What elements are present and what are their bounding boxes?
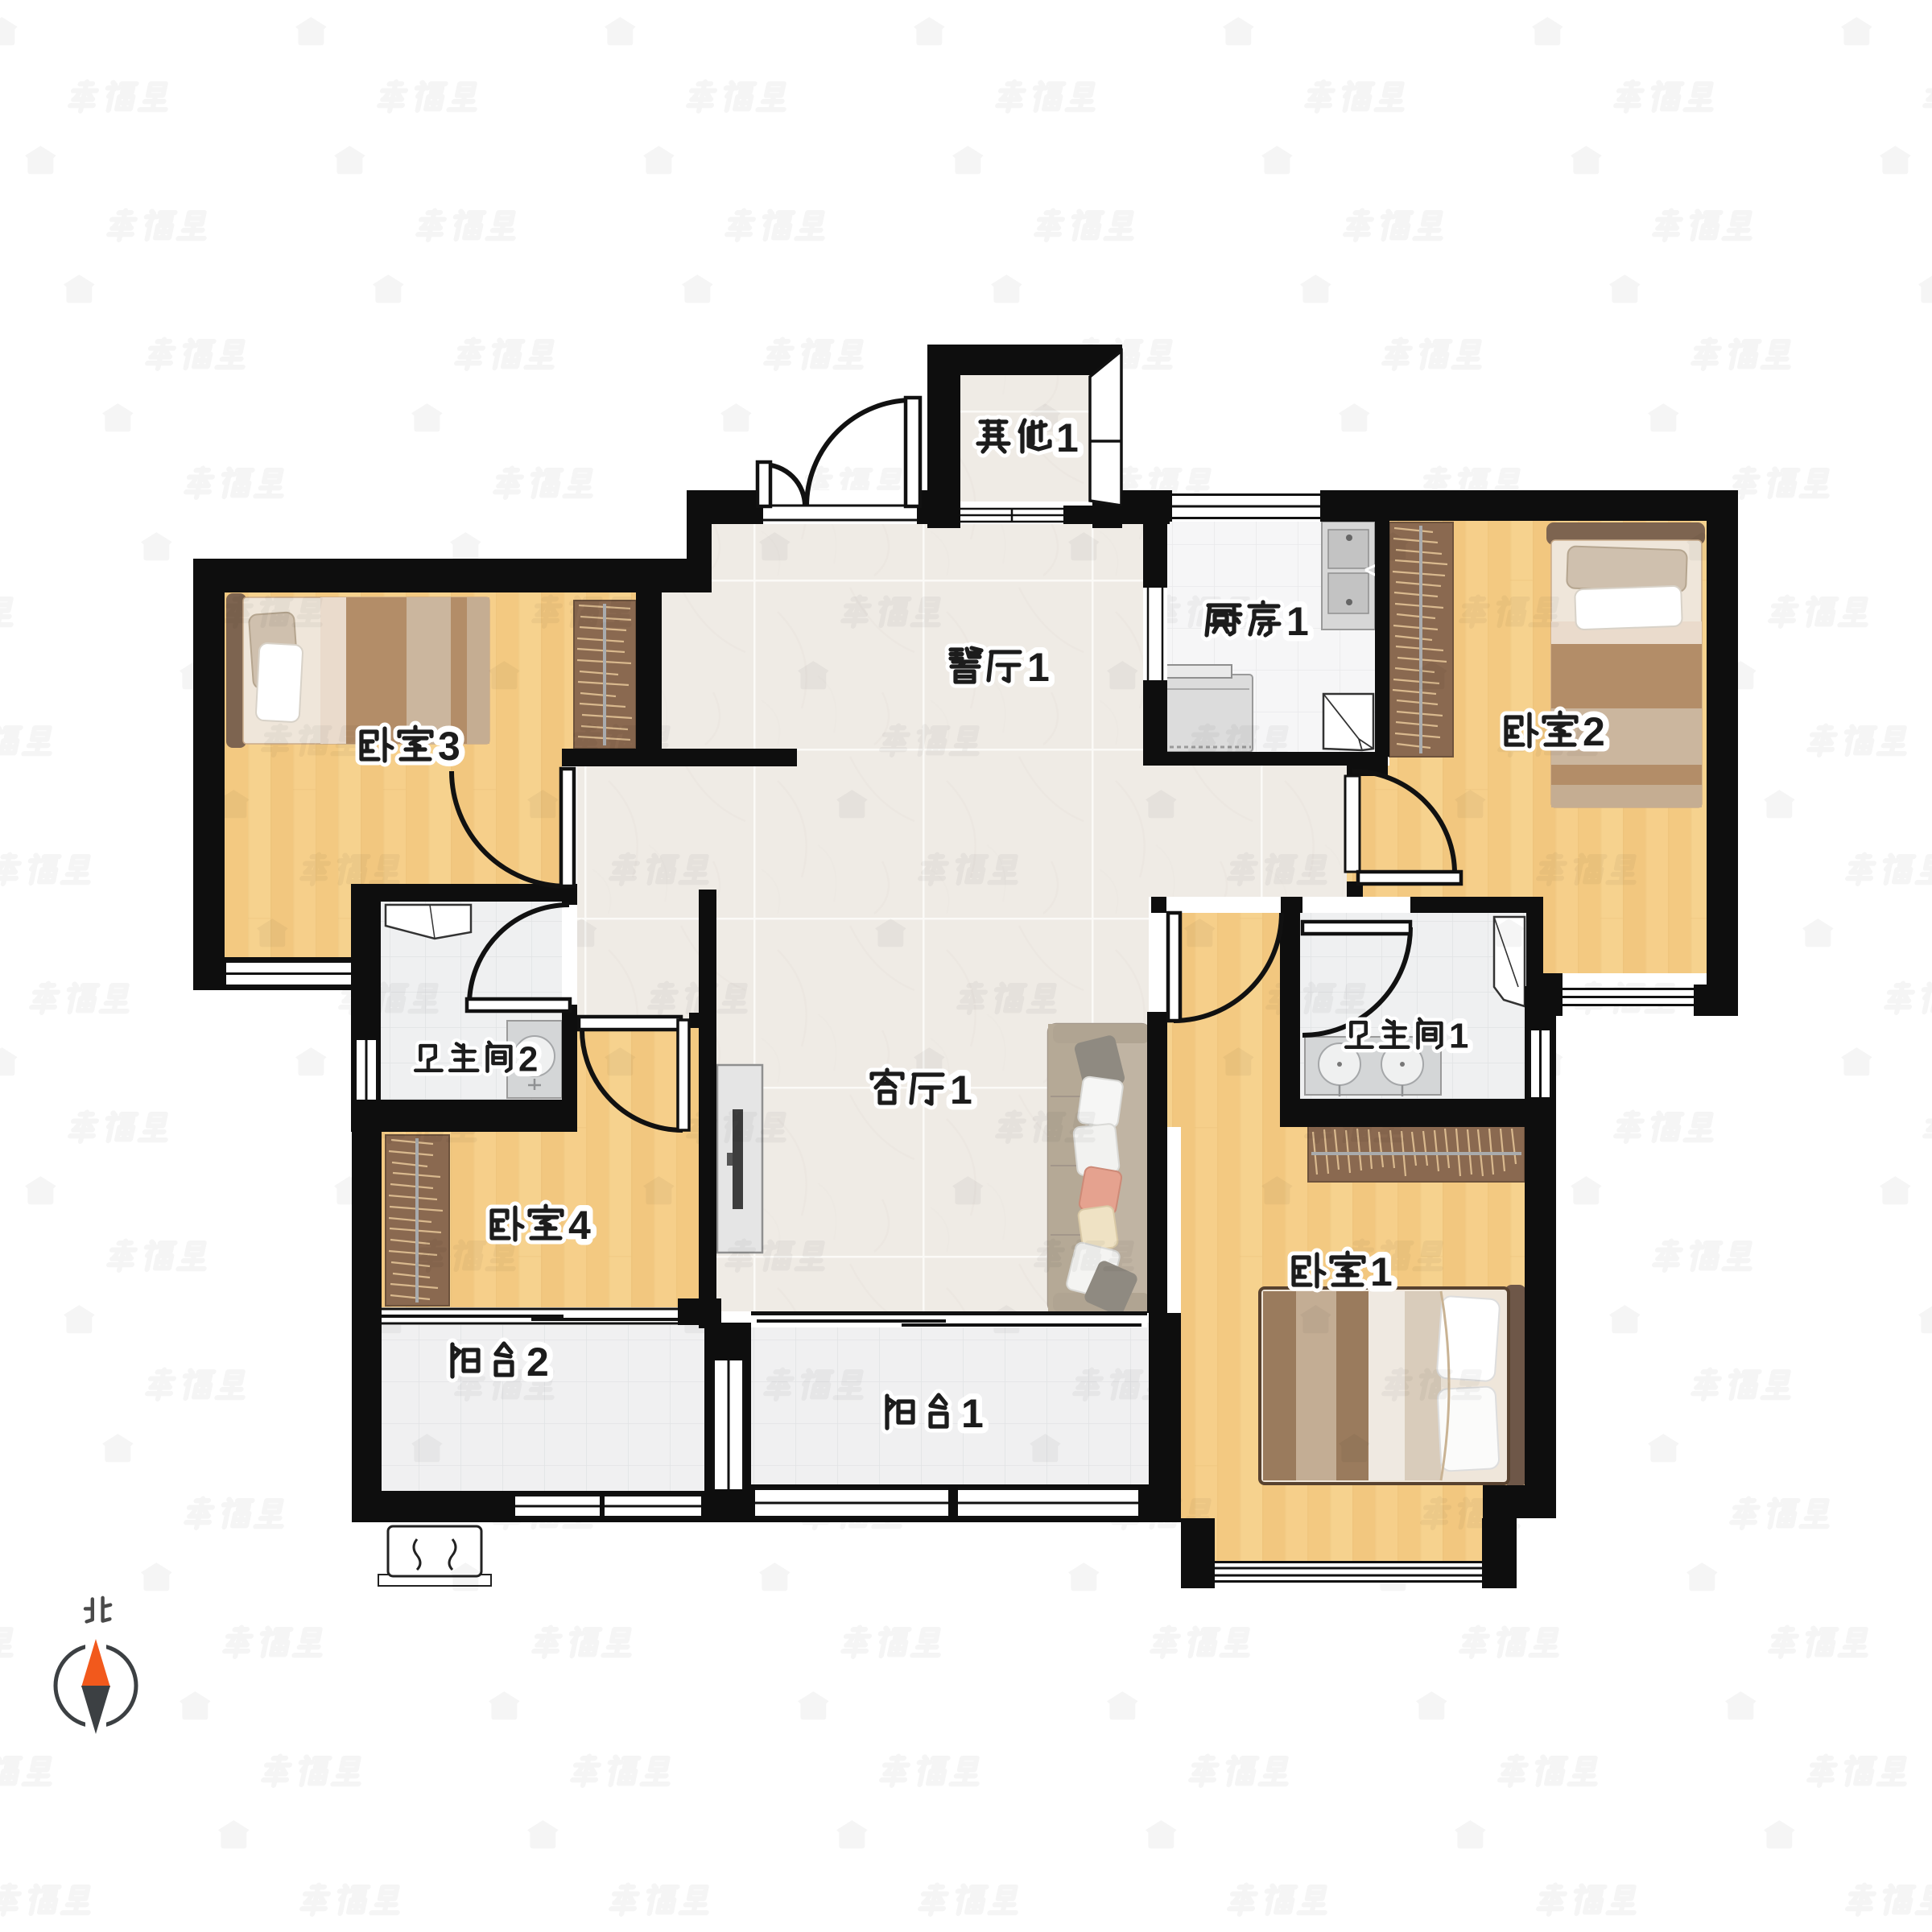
svg-text:3: 3	[438, 724, 460, 769]
svg-text:1: 1	[950, 1067, 972, 1113]
svg-text:1: 1	[1286, 599, 1309, 644]
svg-text:2: 2	[526, 1340, 549, 1385]
svg-text:2: 2	[1583, 709, 1605, 754]
svg-text:2: 2	[518, 1040, 538, 1080]
svg-text:1: 1	[1370, 1249, 1393, 1294]
svg-text:1: 1	[1027, 645, 1050, 690]
svg-text:1: 1	[961, 1391, 984, 1436]
svg-text:1: 1	[1449, 1017, 1468, 1056]
svg-text:1: 1	[1056, 415, 1079, 460]
svg-text:4: 4	[568, 1203, 591, 1248]
